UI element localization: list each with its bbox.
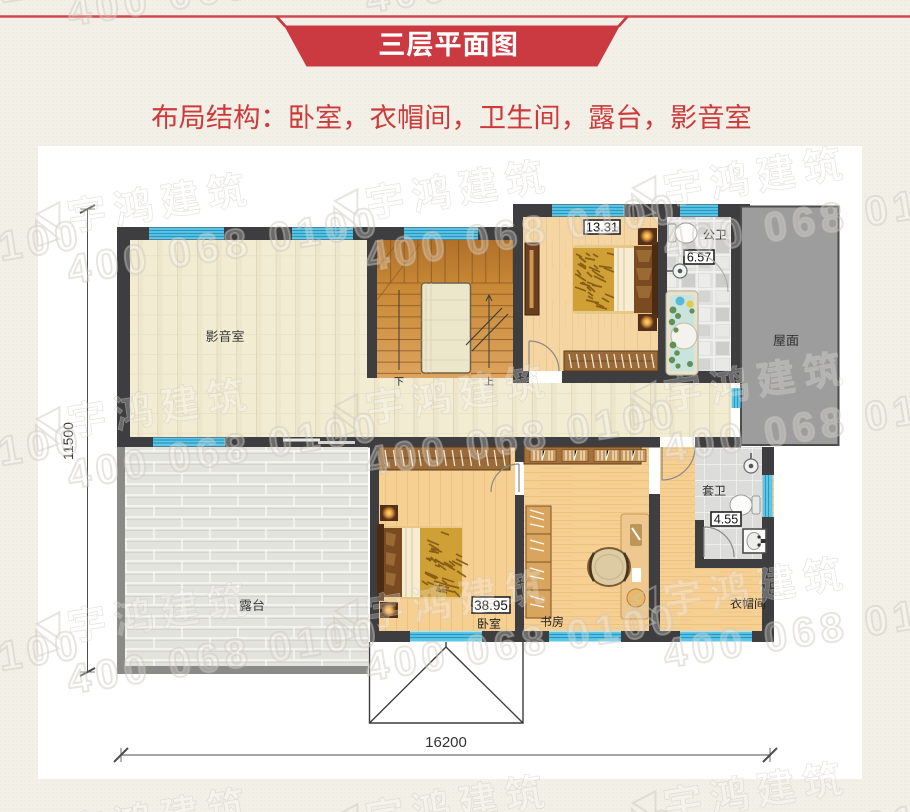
svg-text:16200: 16200 [425, 734, 467, 751]
svg-text:4.55: 4.55 [714, 513, 738, 527]
